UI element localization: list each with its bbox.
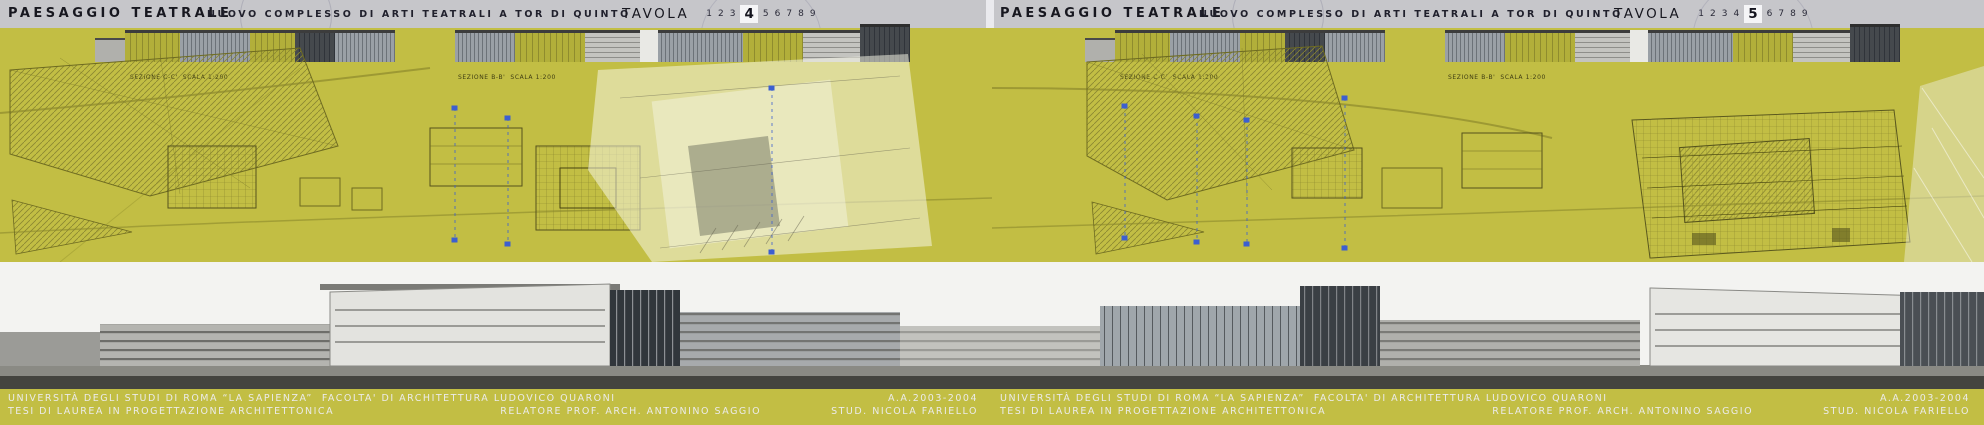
- tavola-label: TAVOLA: [1614, 6, 1681, 22]
- university-line: UNIVERSITÀ DEGLI STUDI DI ROMA “LA SAPIE…: [1000, 393, 1608, 404]
- site-plan-drawing: [0, 28, 992, 262]
- tavola-number: 5: [763, 9, 769, 19]
- tavola-number-active: 5: [1744, 5, 1761, 23]
- advisor-line: RELATORE PROF. ARCH. ANTONINO SAGGIO: [500, 406, 761, 417]
- student-line: STUD. NICOLA FARIELLO: [1823, 406, 1970, 417]
- tavola-number: 7: [786, 9, 792, 19]
- university-line: UNIVERSITÀ DEGLI STUDI DI ROMA “LA SAPIE…: [8, 393, 616, 404]
- tavola-number: 9: [810, 9, 816, 19]
- site-plan-drawing: [992, 28, 1984, 262]
- student-line: STUD. NICOLA FARIELLO: [831, 406, 978, 417]
- board-title: PAESAGGIO TEATRALE: [1000, 6, 1224, 21]
- tavola-number: 4: [1733, 9, 1739, 19]
- presentation-board: PAESAGGIO TEATRALE NUOVO COMPLESSO DI AR…: [0, 0, 1984, 425]
- tavola-number: 6: [775, 9, 781, 19]
- panel-header: PAESAGGIO TEATRALE NUOVO COMPLESSO DI AR…: [992, 0, 1984, 28]
- thesis-line: TESI DI LAUREA IN PROGETTAZIONE ARCHITET…: [1000, 406, 1326, 417]
- tavola-number: 1: [706, 9, 712, 19]
- academic-year: A.A.2003-2004: [1880, 393, 1970, 404]
- tavola-number: 2: [1710, 9, 1716, 19]
- tavola-number: 8: [1790, 9, 1796, 19]
- panel-footer: UNIVERSITÀ DEGLI STUDI DI ROMA “LA SAPIE…: [0, 389, 992, 425]
- tavola-number: 3: [730, 9, 736, 19]
- tavola-number-active: 4: [740, 5, 757, 23]
- tavola-number: 7: [1778, 9, 1784, 19]
- tavola-number: 3: [1722, 9, 1728, 19]
- panel-divider: [986, 0, 994, 28]
- panel-footer: UNIVERSITÀ DEGLI STUDI DI ROMA “LA SAPIE…: [992, 389, 1984, 425]
- tavola-number: 6: [1767, 9, 1773, 19]
- tavola-number: 9: [1802, 9, 1808, 19]
- tavola-index: TAVOLA 1 2 3 4 5 6 7 8 9: [1614, 5, 1811, 23]
- tavola-number: 8: [798, 9, 804, 19]
- academic-year: A.A.2003-2004: [888, 393, 978, 404]
- thesis-line: TESI DI LAUREA IN PROGETTAZIONE ARCHITET…: [8, 406, 334, 417]
- building-render-strip: [0, 262, 1984, 389]
- board-title: PAESAGGIO TEATRALE: [8, 6, 232, 21]
- project-subtitle: NUOVO COMPLESSO DI ARTI TEATRALI A TOR D…: [1199, 9, 1623, 20]
- project-subtitle: NUOVO COMPLESSO DI ARTI TEATRALI A TOR D…: [207, 9, 631, 20]
- tavola-label: TAVOLA: [622, 6, 689, 22]
- tavola-number: 1: [1698, 9, 1704, 19]
- advisor-line: RELATORE PROF. ARCH. ANTONINO SAGGIO: [1492, 406, 1753, 417]
- panel-header: PAESAGGIO TEATRALE NUOVO COMPLESSO DI AR…: [0, 0, 992, 28]
- tavola-number: 2: [718, 9, 724, 19]
- tavola-index: TAVOLA 1 2 3 4 5 6 7 8 9: [622, 5, 819, 23]
